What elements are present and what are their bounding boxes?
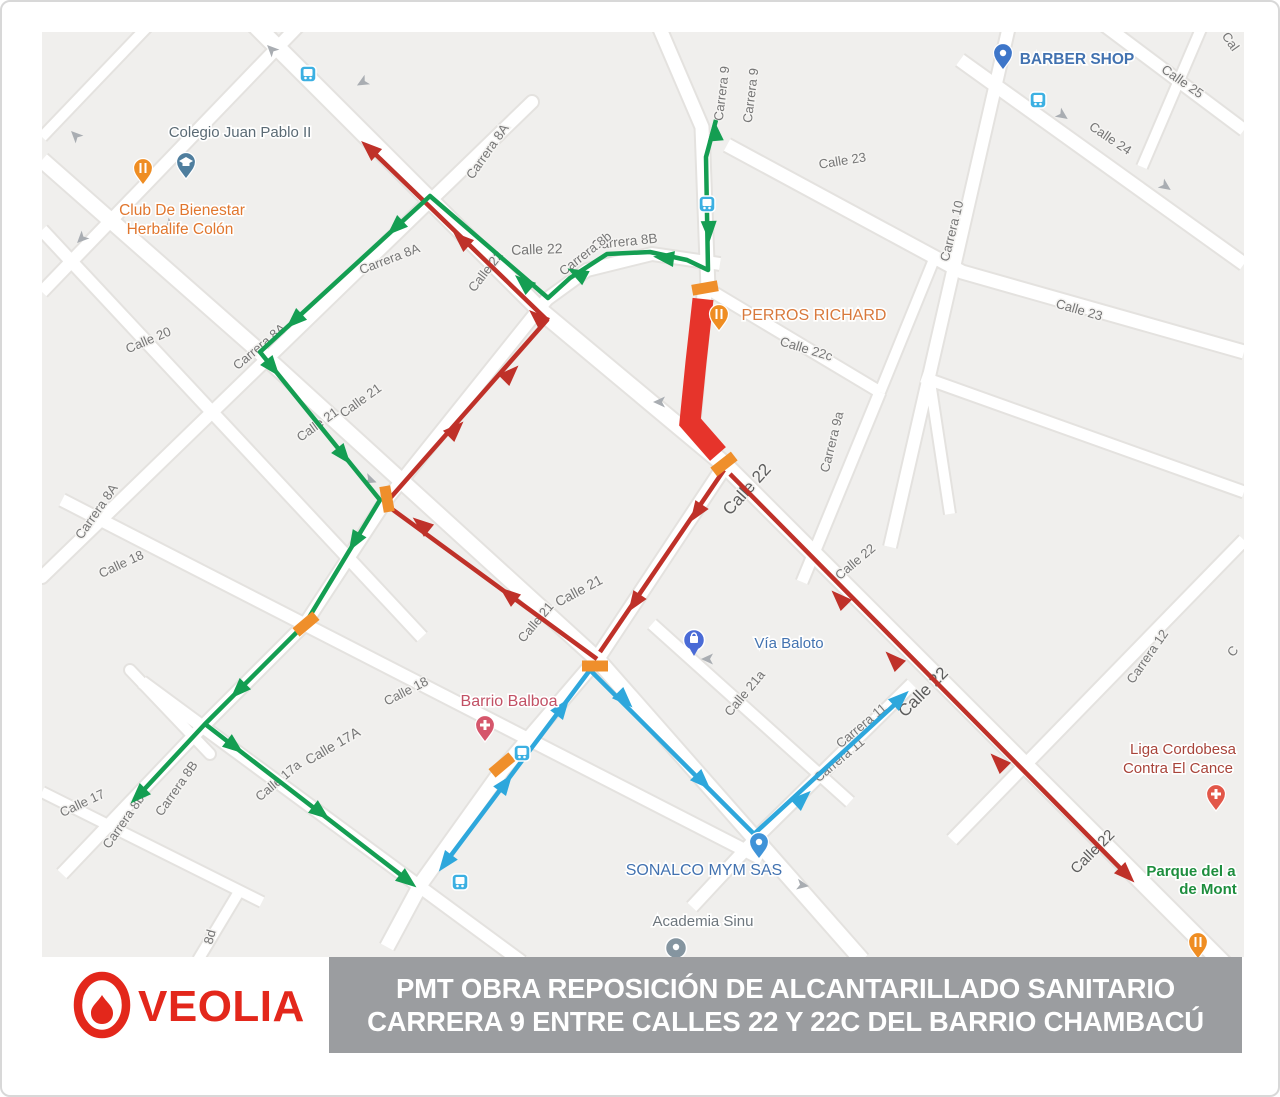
street [42, 32, 302, 292]
banner-title-box: PMT OBRA REPOSICIÓN DE ALCANTARILLADO SA… [329, 957, 1242, 1053]
street [42, 102, 532, 577]
map-canvas[interactable]: Carrera 9Carrera 9Calle 23Calle 24Calle … [42, 32, 1244, 957]
one-way-arrow-icon [67, 127, 83, 143]
poi-pin[interactable] [177, 153, 196, 180]
poi-pin[interactable] [710, 305, 729, 332]
poi-label: Club De Bienestar [119, 202, 245, 219]
street-label: Calle 22c [778, 334, 835, 364]
bus-stop-icon [300, 66, 316, 82]
veolia-drop-icon [91, 995, 113, 1024]
poi-label: Academia Sinu [653, 913, 754, 930]
street [198, 890, 240, 957]
poi-label: PERROS RICHARD [742, 307, 887, 324]
bus-stop-icon [514, 745, 530, 761]
street-label: Calle 18 [96, 547, 146, 581]
street [952, 540, 1244, 840]
poi-label: Vía Baloto [754, 635, 823, 652]
poi-label: Colegio Juan Pablo II [169, 124, 312, 141]
street-label: Calle 21 [337, 380, 384, 420]
banner-title-line1: PMT OBRA REPOSICIÓN DE ALCANTARILLADO SA… [396, 972, 1175, 1005]
street-label: Calle 22 [511, 240, 563, 258]
poi-label: BARBER SHOP [1020, 51, 1135, 68]
poi-pin[interactable] [666, 938, 687, 958]
barrier-icon [582, 661, 608, 672]
veolia-brand-text: VEOLIA [138, 982, 305, 1031]
one-way-arrow-icon [354, 75, 370, 91]
street-label: C [1224, 643, 1242, 660]
street-label: Carrera 9 [740, 67, 762, 123]
one-way-arrow-icon [1158, 179, 1174, 195]
poi-colegio-juan-pablo: Colegio Juan Pablo II [169, 124, 312, 179]
poi-label: Contra El Cance [1123, 760, 1233, 777]
poi-pin[interactable] [1207, 785, 1226, 812]
poi-liga-cordobesa: Liga CordobesaContra El Cance [1123, 741, 1237, 811]
poi-label: de Mont [1179, 881, 1237, 898]
street [130, 670, 210, 754]
street-label: Carrera 9a [817, 409, 847, 474]
poi-sonalco-mym-sas: SONALCO MYM SAS [626, 833, 782, 880]
bus-stop-icon [1030, 92, 1046, 108]
pmt-detour-plan-page: Carrera 9Carrera 9Calle 23Calle 24Calle … [0, 0, 1280, 1097]
poi-academia-sinu: Academia Sinu [653, 913, 754, 957]
street-label: Calle 22 [832, 540, 878, 582]
street [922, 377, 1244, 492]
street-label: Calle 21 [552, 571, 605, 609]
street-label: Cal [1219, 32, 1243, 54]
detour-map: Carrera 9Carrera 9Calle 23Calle 24Calle … [42, 32, 1244, 957]
bus-stop-icon [452, 874, 468, 890]
banner-title-line2: CARRERA 9 ENTRE CALLES 22 Y 22C DEL BARR… [367, 1005, 1204, 1038]
poi-via-baloto: Vía Baloto [684, 630, 824, 657]
bottom-banner: VEOLIA PMT OBRA REPOSICIÓN DE ALCANTARIL… [2, 957, 1280, 1053]
street-label: Calle 23 [818, 149, 867, 171]
poi-barber-shop: BARBER SHOP [994, 44, 1135, 71]
veolia-logo-box: VEOLIA [43, 957, 326, 1053]
poi-label: Herbalife Colón [127, 221, 234, 238]
veolia-logo: VEOLIA [50, 961, 320, 1049]
poi-label: Barrio Balboa [461, 693, 558, 710]
street-label: Carrera 9 [711, 65, 733, 121]
poi-label: SONALCO MYM SAS [626, 862, 782, 879]
bus-stop-icon [699, 196, 715, 212]
street [42, 230, 422, 637]
poi-pin[interactable] [476, 716, 495, 743]
street-network [42, 32, 1244, 957]
street-label: Calle 17A [302, 723, 363, 768]
poi-label: Liga Cordobesa [1130, 741, 1237, 758]
poi-label: Parque del a [1146, 863, 1236, 880]
